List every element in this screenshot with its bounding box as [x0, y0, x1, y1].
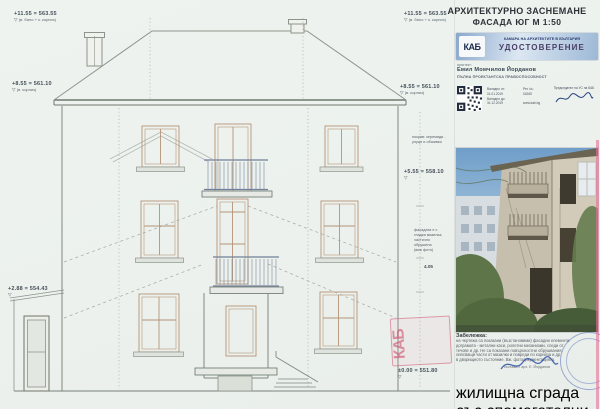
- level-mark-icon: (в. корниз): [400, 90, 440, 96]
- building-photo-image: [456, 148, 598, 332]
- level-ridge-left: +11.55 = 563.55 (в. било + к. корниз): [14, 11, 57, 23]
- level-mark-icon: (в. корниз): [12, 87, 52, 93]
- registration-number: Рег. №: 04265 www.kab.bg: [523, 87, 553, 106]
- roof-note: покрив: керемиди - улуци и обшивки: [412, 135, 456, 145]
- chairman-signature-icon: [553, 91, 595, 106]
- bay-and-steps: [195, 293, 318, 391]
- kab-stamp-monogram: КАБ: [390, 329, 410, 360]
- level-cornice-left: +8.55 = 561.10 (в. корниз): [12, 81, 52, 93]
- cornice: [54, 100, 406, 105]
- qr-code-icon: [457, 86, 482, 111]
- building-photo: [456, 148, 598, 332]
- kab-red-stamp: КАБ: [390, 315, 452, 366]
- level-mark-icon: [404, 175, 444, 181]
- reference-lines: [119, 18, 420, 389]
- title-line1: АРХИТЕКТУРНО ЗАСНЕМАНЕ: [436, 6, 598, 16]
- architect-qualification: ПЪЛНА ПРОЕКТАНТСКА ПРАВОСПОСОБНОСТ: [457, 75, 547, 79]
- level-cornice-right: +8.55 = 561.10 (в. корниз): [400, 84, 440, 96]
- chairman-signature-block: Председател на УС на КАБ: [551, 86, 597, 108]
- title-line2: ФАСАДА ЮГ М 1:50: [436, 17, 598, 27]
- certificate-doc-title: УДОСТОВЕРЕНИЕ: [489, 43, 595, 52]
- level-mark-icon: (в. било + к. корниз): [14, 17, 57, 23]
- kab-logo-icon: КАБ: [459, 36, 485, 57]
- architect-signature-icon: [497, 355, 561, 375]
- balconies: [202, 160, 283, 294]
- certificate-details: Валидно от: 01.01.2019 Валидно до: 31.12…: [456, 85, 598, 115]
- drawing-sheet: +11.55 = 563.55 (в. било + к. корниз) +1…: [0, 0, 600, 409]
- level-mid-right: +5.55 = 558.10: [404, 169, 444, 181]
- pediment: [110, 132, 212, 162]
- windows: [139, 124, 358, 356]
- level-ground-right: ±0.00 = 551.80: [398, 368, 438, 380]
- dimension-label: 4.05: [424, 264, 433, 269]
- validity-dates: Валидно от: 01.01.2019 Валидно до: 31.12…: [487, 87, 523, 106]
- level-mark-icon: [398, 374, 438, 380]
- level-mark-icon: [8, 292, 48, 298]
- certificate-header-band: КАБ КАМАРА НА АРХИТЕКТИТЕ В БЪЛГАРИЯ УДО…: [456, 33, 598, 60]
- walls: [62, 106, 398, 391]
- certificate-org: КАМАРА НА АРХИТЕКТИТЕ В БЪЛГАРИЯ: [489, 37, 595, 41]
- panel-divider: [454, 0, 455, 409]
- level-floor-left: +2.88 = 554.43: [8, 286, 48, 298]
- architect-certificate: КАБ КАМАРА НА АРХИТЕКТИТЕ В БЪЛГАРИЯ УДО…: [456, 33, 598, 117]
- project-line: жилищна сграда със спомагателни части: [456, 385, 598, 409]
- side-note: фасадата е с гладка мазилка, частично об…: [414, 228, 454, 253]
- architect-name: Емил Момчилов Йорданов: [457, 67, 536, 73]
- sheet-title: АРХИТЕКТУРНО ЗАСНЕМАНЕ ФАСАДА ЮГ М 1:50: [436, 6, 598, 27]
- roof: [54, 20, 406, 101]
- project-title-block: жилищна сграда със спомагателни части на…: [456, 385, 598, 409]
- scan-edge-line: [596, 140, 599, 409]
